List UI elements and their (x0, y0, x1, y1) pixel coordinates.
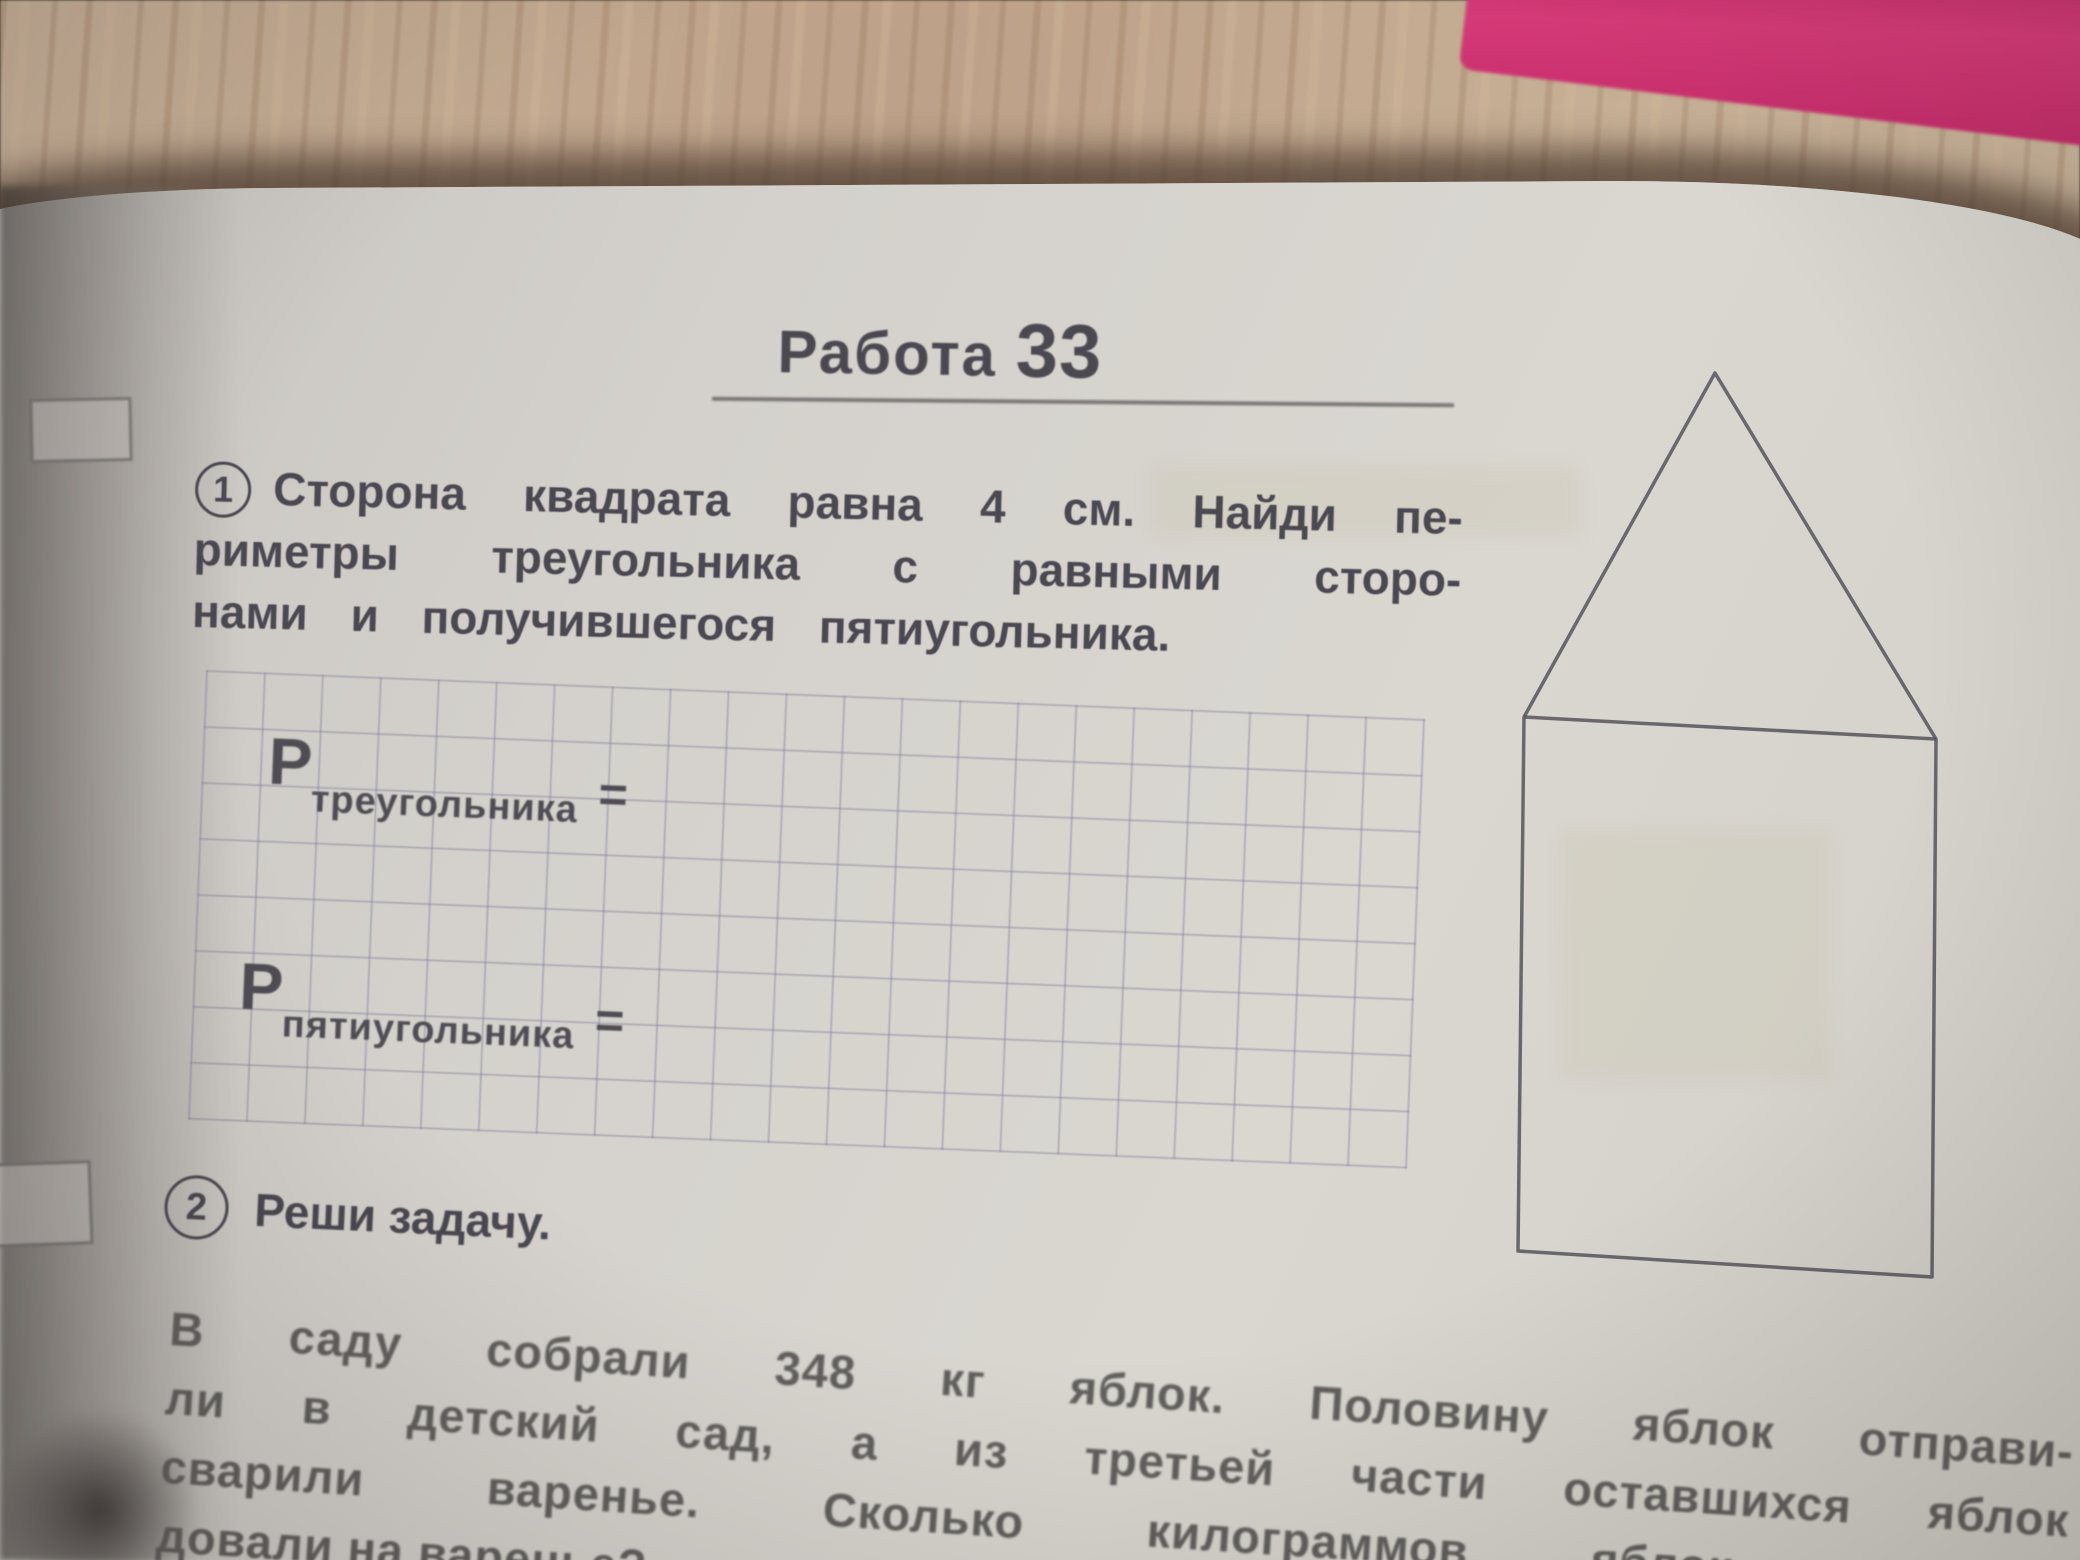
task1-number: 1 (212, 458, 234, 520)
perimeter-pentagon-label: Pпятиугольника= (237, 948, 627, 1060)
task2-number-badge: 2 (163, 1174, 230, 1241)
squared-answer-grid: Pтреугольника= Pпятиугольника= (188, 670, 1425, 1169)
equals-sign: = (594, 992, 625, 1049)
title-word: Работа (777, 318, 998, 389)
title-underline (712, 397, 1454, 407)
task2-problem-text: В саду собрали 348 кг яблок. Половину яб… (154, 1294, 2076, 1560)
square-top-edge (1524, 717, 1936, 739)
task2-heading: 2 Реши задачу. (163, 1174, 553, 1255)
equals-sign: = (597, 766, 628, 823)
pentagon-outline (1518, 373, 1936, 1277)
p-subscript: треугольника (310, 778, 579, 831)
task1-number-badge: 1 (195, 461, 252, 518)
page-content: Работа 33 1 Сторона квадрата равна 4 см.… (0, 0, 2080, 1560)
title-number: 33 (1015, 308, 1103, 394)
page-title: Работа 33 (659, 301, 1220, 398)
task2-number: 2 (185, 1185, 208, 1229)
workbook-photo: Работа 33 1 Сторона квадрата равна 4 см.… (0, 0, 2080, 1560)
p-symbol: P (267, 724, 314, 800)
perimeter-triangle-label: Pтреугольника= (266, 723, 630, 834)
task2-heading-text: Реши задачу. (253, 1183, 552, 1250)
task1: 1 Сторона квадрата равна 4 см. Найди пе-… (191, 456, 1463, 673)
p-subscript: пятиугольника (281, 1003, 575, 1057)
house-pentagon-figure (1480, 340, 1980, 1300)
p-symbol: P (238, 949, 285, 1025)
